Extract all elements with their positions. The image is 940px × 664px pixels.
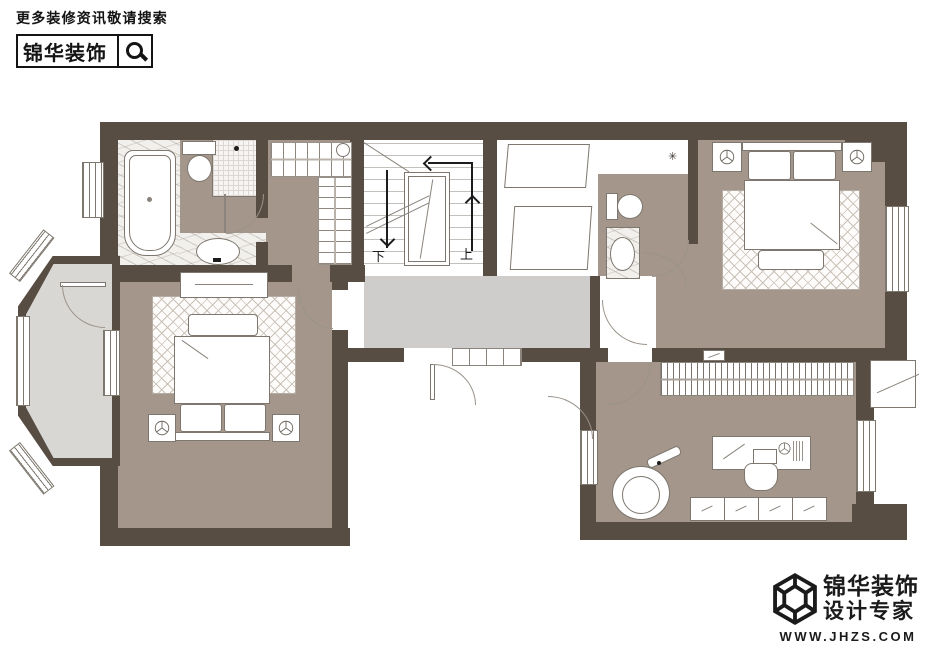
bay-box-diagonal [877, 374, 919, 394]
desk-papers [793, 441, 805, 461]
study-window-right [856, 420, 876, 492]
stair-newel-inner [408, 176, 446, 262]
wall [332, 282, 348, 290]
bed-body [174, 336, 270, 404]
stair-down-label: 下 [372, 250, 385, 263]
wall [348, 348, 404, 362]
nightstand [842, 142, 872, 172]
closet-light [336, 143, 350, 157]
bedroom2-window [103, 330, 120, 396]
cabinet-slash [701, 506, 712, 512]
footer-brand: 锦华装饰 [823, 575, 919, 599]
header: 更多装修资讯敬请搜索 锦华装饰 [16, 8, 168, 68]
stair-up-label: 上 [460, 248, 473, 261]
cube-logo-icon [772, 572, 818, 626]
shaft-outline [504, 144, 590, 188]
storage-cabinet [792, 497, 827, 521]
toilet-tank [182, 141, 216, 155]
suite-door-gap [292, 265, 330, 282]
newel-diagonal [420, 179, 434, 258]
bed-fold-line [810, 223, 837, 245]
wall-lamp-icon: ✳ [668, 152, 677, 163]
closet-hanging-rail-right [318, 177, 352, 265]
lamp-icon [848, 148, 866, 166]
sink [610, 237, 635, 271]
nightstand [272, 414, 300, 442]
bed-bench [758, 250, 824, 270]
wall [885, 288, 907, 348]
bed-bench [188, 314, 258, 336]
bed-headboard [742, 142, 842, 151]
nightstand [712, 142, 742, 172]
wall [580, 481, 596, 540]
cabinet-slash [769, 506, 780, 512]
shaft-outline [510, 206, 592, 270]
brand-logo-box: 锦华装饰 [16, 34, 153, 68]
wall [330, 265, 365, 282]
toilet-bowl [617, 194, 643, 219]
vent-slash [708, 353, 720, 358]
toilet-bowl [187, 155, 212, 182]
storage-cabinet [758, 497, 793, 521]
pillow [180, 404, 222, 432]
lamp-icon [153, 419, 171, 437]
shower-head [234, 146, 239, 151]
bathtub [124, 150, 176, 256]
storage-cabinet [690, 497, 725, 521]
wall [688, 140, 698, 244]
bathroom-window [82, 162, 104, 218]
wall-vent [703, 350, 725, 361]
desk-chair [744, 463, 778, 491]
wall [100, 528, 350, 546]
lamp-icon [718, 148, 736, 166]
magnifier-icon [119, 36, 151, 66]
pillow [748, 151, 791, 180]
sink-faucet [213, 258, 221, 262]
stair-newel [404, 172, 450, 266]
wall [520, 348, 580, 362]
brand-name: 锦华装饰 [18, 37, 117, 66]
footer-text: 锦华装饰 设计专家 [823, 575, 919, 622]
storage-cabinet [724, 497, 759, 521]
dresser [180, 272, 268, 298]
lounge-chair-inner [622, 476, 660, 514]
wall [580, 348, 608, 362]
cabinet-slash [735, 506, 746, 512]
master-window [885, 206, 909, 292]
footer-website: WWW.JHZS.COM [772, 629, 924, 644]
wall [590, 276, 600, 348]
footer-logo: 锦华装饰 设计专家 WWW.JHZS.COM [772, 572, 924, 644]
wall [885, 160, 907, 206]
lounge-dot [657, 461, 661, 465]
bathtub-drain [147, 197, 152, 202]
hallway-floor [364, 276, 590, 348]
pillow [224, 404, 266, 432]
bed-headboard [174, 432, 270, 441]
wall [485, 122, 697, 140]
study-bay-box [870, 360, 916, 408]
wall [695, 122, 847, 140]
dresser-handle [195, 284, 253, 285]
footer-tagline: 设计专家 [823, 600, 919, 623]
bed-fold-line [182, 340, 209, 359]
desk-pen [723, 444, 745, 460]
magnifier-handle [139, 52, 148, 61]
pillow [793, 151, 836, 180]
floor-plan-page: 更多装修资讯敬请搜索 锦华装饰 [0, 0, 940, 664]
laptop [753, 449, 777, 464]
lamp-icon [277, 419, 295, 437]
bay-window-left [16, 316, 30, 406]
terrace-door-arc [433, 364, 476, 405]
wall [350, 140, 364, 265]
bed-body [744, 180, 840, 250]
study-wardrobe [660, 362, 854, 396]
footer-row: 锦华装饰 设计专家 [772, 572, 924, 626]
lamp-icon [777, 441, 792, 456]
cabinet-slash [803, 506, 814, 512]
wall [332, 330, 348, 544]
nightstand [148, 414, 176, 442]
wall [595, 522, 907, 540]
search-hint-text: 更多装修资讯敬请搜索 [16, 8, 168, 28]
wall [652, 348, 907, 362]
wall [100, 122, 485, 140]
bathtub-inner [129, 155, 171, 251]
hallway-steps [452, 348, 522, 366]
wall [483, 140, 497, 276]
